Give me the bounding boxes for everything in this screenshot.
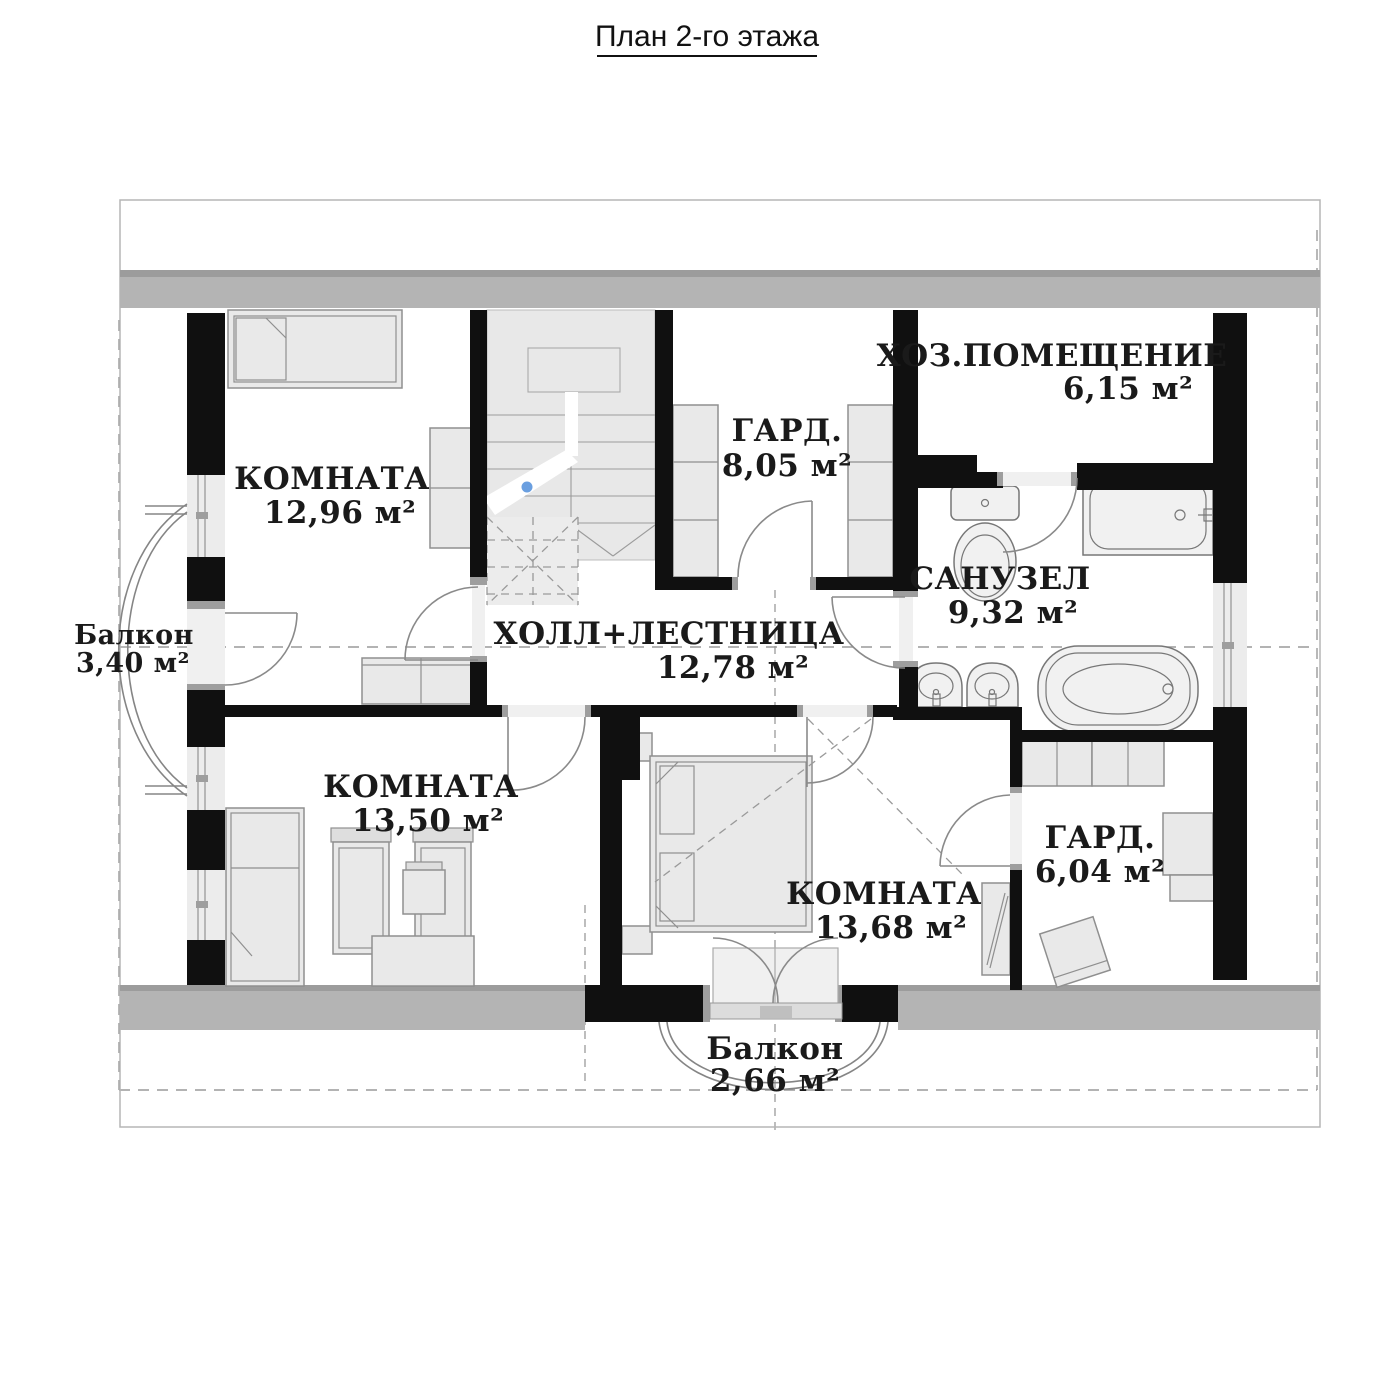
door-opening: [508, 705, 585, 717]
room-area: 9,32 м²: [948, 595, 1078, 631]
wall: [187, 940, 225, 985]
wall: [600, 780, 622, 990]
dresser-icon: [362, 658, 480, 704]
table-icon: [372, 936, 474, 986]
wall: [893, 707, 1022, 720]
stair-break-strip: [565, 392, 578, 456]
wall: [1077, 463, 1213, 490]
room-area: 3,40 м²: [76, 648, 190, 679]
room-label: КОМНАТА: [786, 876, 982, 912]
door-arc: [940, 795, 1010, 866]
balcony-door-arc: [225, 613, 297, 685]
window: [187, 870, 225, 940]
floor-plan-svg: План 2-го этажа: [0, 0, 1400, 1400]
wall: [187, 313, 225, 475]
door-opening: [1010, 793, 1022, 870]
wall: [816, 577, 905, 590]
wall: [655, 577, 738, 590]
wall: [842, 985, 898, 1022]
window: [187, 475, 225, 557]
bottom-wall-band-right: [898, 985, 1320, 1030]
room-area: 6,04 м²: [1035, 854, 1165, 890]
single-bed-icon: [226, 808, 304, 986]
sink-icon: [911, 663, 962, 707]
window: [187, 747, 225, 810]
room-area: 13,68 м²: [815, 910, 967, 946]
wall: [893, 472, 1003, 488]
door-opening: [803, 705, 873, 717]
stair-marker-dot: [522, 482, 533, 493]
wall: [187, 689, 225, 747]
page-title: План 2-го этажа: [595, 20, 819, 53]
room-label: Балкон: [706, 1031, 843, 1067]
room-label: ХОЗ.ПОМЕЩЕНИЕ: [877, 338, 1228, 374]
wall: [899, 666, 918, 712]
wall: [873, 705, 897, 717]
door-arc: [738, 501, 812, 577]
side-table-icon: [403, 862, 445, 914]
window: [1213, 583, 1247, 707]
freestanding-bathtub-icon: [1038, 646, 1198, 732]
single-bed-icon: [228, 310, 402, 388]
floor-plan-page: План 2-го этажа: [0, 0, 1400, 1400]
wall: [1213, 707, 1247, 980]
wall: [655, 310, 673, 583]
wall: [1010, 717, 1022, 793]
room-label: Балкон: [74, 620, 194, 651]
room-label: ГАРД.: [732, 413, 843, 449]
wall: [1010, 730, 1213, 742]
room-area: 12,96 м²: [264, 495, 416, 531]
top-wall-band-edge: [120, 270, 1320, 277]
room-area: 8,05 м²: [722, 448, 852, 484]
wall: [187, 810, 225, 870]
room-label: САНУЗЕЛ: [909, 561, 1090, 597]
room-label: КОМНАТА: [234, 461, 430, 497]
wall: [225, 705, 508, 717]
bottom-wall-band-right-edge: [898, 985, 1320, 991]
staircase: [483, 310, 655, 605]
room-label: ХОЛЛ+ЛЕСТНИЦА: [494, 616, 845, 652]
room-area: 6,15 м²: [1063, 371, 1193, 407]
room-label: КОМНАТА: [323, 769, 519, 805]
balcony-door-sill: [760, 1006, 792, 1018]
room-label: ГАРД.: [1045, 820, 1156, 856]
door-opening: [899, 597, 913, 666]
shelving-icon: [1022, 736, 1164, 786]
bottom-wall-band-left: [120, 985, 585, 1030]
stool-icon: [1040, 917, 1111, 988]
room-area: 13,50 м²: [352, 803, 504, 839]
door-arc: [405, 587, 478, 660]
room-area: 12,78 м²: [657, 650, 809, 686]
door-opening: [472, 585, 485, 660]
bottom-wall-band-left-edge: [120, 985, 585, 991]
wall: [470, 310, 487, 577]
wall: [585, 985, 710, 1022]
door-opening: [1003, 472, 1077, 486]
desk-icon: [331, 828, 391, 954]
door-arc: [508, 717, 585, 790]
wall: [600, 712, 640, 780]
balcony-french-doors: [710, 938, 842, 1019]
sink-icon: [967, 663, 1018, 707]
double-bed-icon: [622, 733, 812, 954]
cabinet-icon: [1163, 813, 1216, 901]
room-area: 2,66 м²: [710, 1063, 840, 1099]
wall: [1010, 870, 1022, 990]
mirror-icon: [982, 883, 1010, 975]
